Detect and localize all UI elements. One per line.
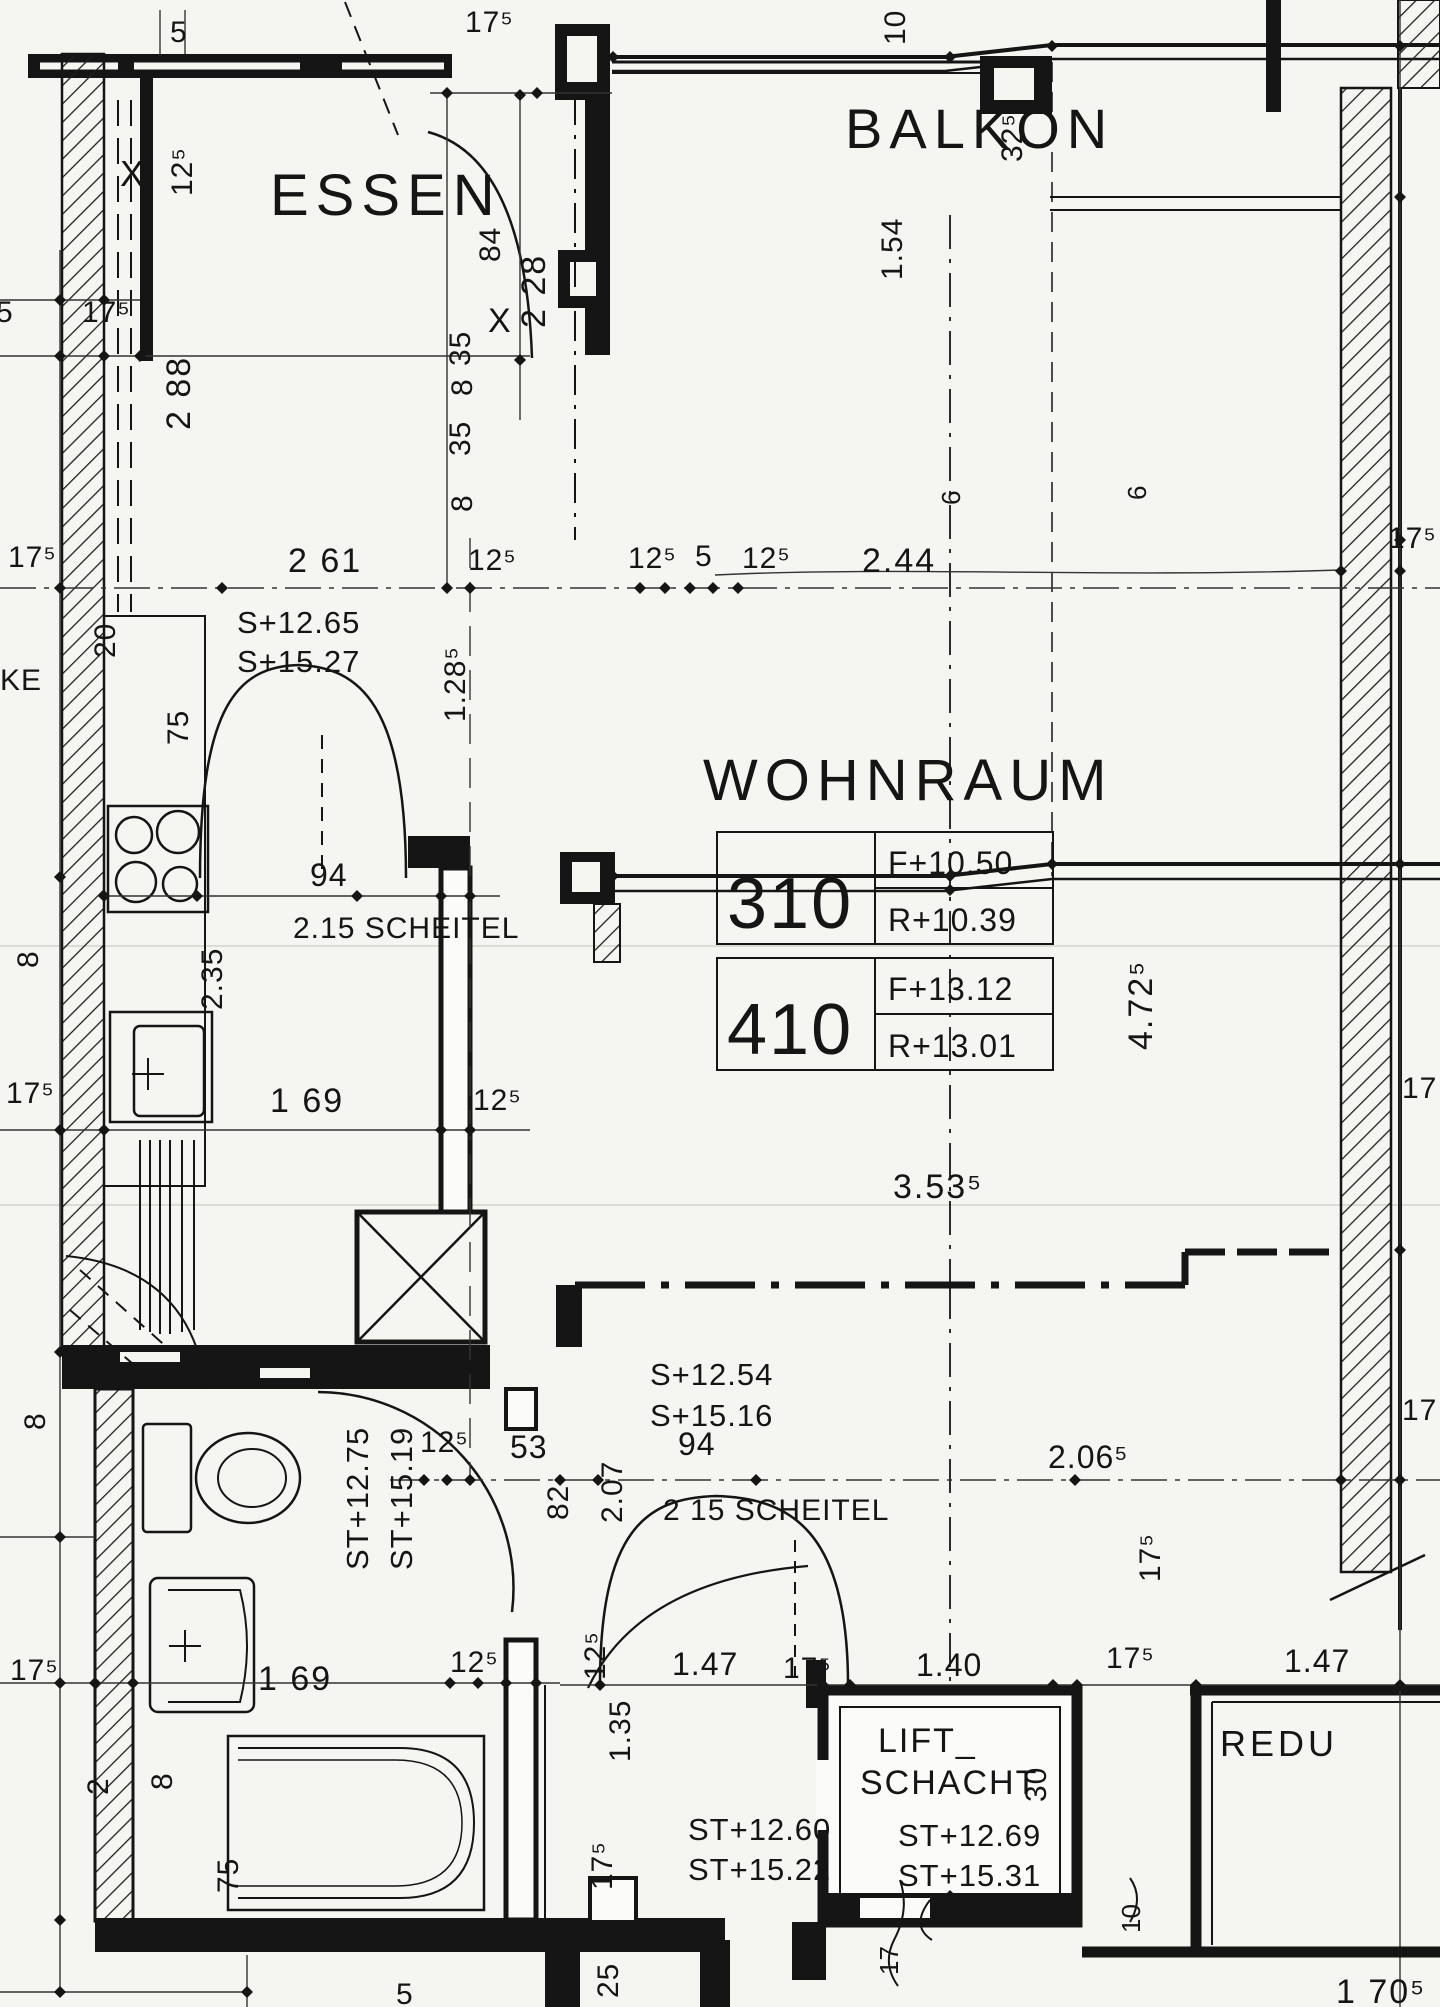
spot-level-wc-2: ST+15.19 [384, 1427, 419, 1570]
dim-169-kitchen: 1 69 [270, 1082, 344, 1120]
dim-8-left-2: 8 [19, 1412, 52, 1430]
dimension-dot [464, 1474, 476, 1486]
dim-175-mid-1: 17⁵ [783, 1652, 832, 1685]
dim-top-325: 32⁵ [996, 113, 1029, 162]
dim-235: 2.35 [196, 948, 229, 1010]
wall-right-exterior [1050, 0, 1440, 1630]
wall-entry-stub [556, 1285, 582, 1347]
table-410-f: F+13.12 [888, 971, 1013, 1007]
dim-147-b: 1.47 [1284, 1643, 1350, 1679]
dimension-dot [944, 884, 956, 896]
dimension-dot [659, 582, 671, 594]
dimension-dot [531, 87, 543, 99]
dimension-dot [418, 1474, 430, 1486]
room-label-lift-1: LIFT_ [878, 1722, 977, 1760]
dimension-dot [514, 89, 526, 101]
room-label-lift-2: SCHACHT [860, 1764, 1038, 1802]
spot-level-essen-2: S+15.27 [237, 644, 360, 679]
wall-stub-below-a [545, 1952, 580, 2007]
dim-1705: 1 70⁵ [1336, 1973, 1426, 2007]
dimension-dot [1394, 191, 1406, 203]
dimension-dot [634, 582, 646, 594]
dimension-dot [441, 582, 453, 594]
dimension-dot [750, 1474, 762, 1486]
dim-125-a: 12⁵ [468, 544, 517, 577]
dim-175-right-1: 17⁵ [1388, 522, 1437, 555]
dim-125-f: 12⁵ [450, 1646, 499, 1679]
dim-53: 53 [510, 1429, 548, 1465]
table-310-r: R+10.39 [888, 902, 1017, 938]
dim-94-entry: 94 [678, 1426, 716, 1462]
dimension-dot [684, 582, 696, 594]
dim-261: 2 61 [288, 542, 362, 580]
dimension-dot [1069, 1474, 1081, 1486]
washbasin [150, 1578, 254, 1712]
scanned-floorplan-page: ESSEN BALKON WOHNRAUM LIFT_ SCHACHT REDU… [0, 0, 1440, 2007]
dimension-dot [707, 582, 719, 594]
dimension-dot [732, 582, 744, 594]
dim-4725: 4.72⁵ [1122, 960, 1160, 1050]
drainboard [140, 1140, 194, 1334]
table-410-r: R+13.01 [888, 1028, 1017, 1064]
dimension-dot [241, 1986, 253, 1998]
dim-244: 2.44 [862, 542, 936, 580]
dim-2-bottomleft: 2 [82, 1777, 115, 1795]
wall-left-inner-strip [140, 78, 153, 361]
dim-35-b: 35 [444, 421, 477, 456]
dim-84: 84 [474, 227, 507, 262]
wall-bath-left [95, 1389, 133, 1921]
shaft-x-box [357, 1212, 485, 1342]
table-unit-310: 310 [727, 864, 853, 944]
dim-147-a: 1.47 [672, 1646, 738, 1682]
dim-175-left-4: 17⁵ [10, 1654, 59, 1687]
spot-level-bad-2: ST+15.22 [688, 1852, 831, 1887]
dimension-dot [554, 1474, 566, 1486]
room-label-wohnraum: WOHNRAUM [703, 748, 1113, 813]
dim-75-b: 75 [212, 1858, 245, 1893]
dimension-dot [464, 582, 476, 594]
dimension-dot [1394, 858, 1406, 870]
dim-94-kitchen: 94 [310, 857, 348, 893]
arch-kitchen [200, 665, 406, 878]
dim-17-right-1: 17 [1402, 1072, 1437, 1105]
dim-140: 1.40 [916, 1647, 982, 1683]
dim-35-a: 35 [444, 331, 477, 366]
dim-x-upper: X [120, 153, 144, 194]
dim-5-bottom: 5 [396, 1978, 414, 2007]
dim-top-5: 5 [170, 16, 188, 49]
dim-175-vert-1: 17⁵ [586, 1841, 619, 1890]
toilet [143, 1424, 300, 1532]
dimension-dot [1394, 1474, 1406, 1486]
dim-17-right-2: 17 [1402, 1394, 1437, 1427]
dim-125-e: 12⁵ [420, 1426, 469, 1459]
wall-left-exterior [62, 54, 104, 1348]
kitchen-counter [104, 616, 205, 1186]
dimension-dot [1046, 40, 1058, 52]
dim-8-a: 8 [446, 378, 479, 396]
dim-175-left-3: 17⁵ [6, 1077, 55, 1110]
dim-x-lower: X [488, 302, 511, 340]
dim-125-b: 12⁵ [628, 542, 677, 575]
dimension-dot [1394, 1244, 1406, 1256]
dim-top-175: 17⁵ [465, 6, 514, 39]
dim-175-left-1: 17⁵ [82, 296, 131, 329]
dimension-dot [54, 1914, 66, 1926]
wall-kitchen-bath-band [62, 1345, 490, 1389]
dim-175-mid-2: 17⁵ [1106, 1642, 1155, 1675]
note-scheitel-kitchen: 2.15 SCHEITEL [293, 912, 519, 945]
wall-bath-right-jamb [506, 1389, 536, 1429]
dim-207: 2.07 [596, 1461, 629, 1523]
spot-level-bad-1: ST+12.60 [688, 1812, 831, 1847]
dimension-dot [216, 582, 228, 594]
dim-5-left: 5 [0, 296, 14, 329]
dimension-dot [54, 1531, 66, 1543]
sink [110, 1012, 212, 1122]
dim-2065: 2.06⁵ [1048, 1439, 1129, 1475]
dim-17-scribble: 17 [874, 1946, 904, 1975]
spot-level-wc-1: ST+12.75 [340, 1427, 375, 1570]
dim-1285: 1.28⁵ [439, 646, 472, 722]
wall-stub-below-b [700, 1940, 730, 2007]
dim-8-left: 8 [12, 950, 45, 968]
table-310-f: F+10.50 [888, 845, 1013, 881]
room-label-balkon: BALKON [845, 97, 1114, 160]
dimension-dot [441, 1474, 453, 1486]
spot-level-wohnraum-1: S+12.54 [650, 1357, 773, 1392]
wall-kitchen-corner [408, 836, 470, 868]
spot-level-lift-1: ST+12.69 [898, 1818, 1041, 1853]
dim-6-b: 6 [1122, 486, 1152, 500]
dim-75-a: 75 [162, 710, 195, 745]
dim-135: 1.35 [604, 1700, 637, 1762]
dimension-dot [1394, 565, 1406, 577]
dim-10-scribble: 10 [1116, 1904, 1146, 1933]
dim-288: 2 88 [160, 356, 198, 430]
note-scheitel-entry: 2 15 SCHEITEL [663, 1494, 889, 1527]
balcony-door-frames [555, 24, 1052, 355]
room-label-redu: REDU [1220, 1723, 1338, 1764]
dim-20: 20 [89, 623, 122, 658]
dim-125-vert: 12⁵ [166, 147, 199, 196]
dimension-dot [351, 890, 363, 902]
dim-82: 82 [542, 1485, 575, 1520]
label-fragment-ke: KE [0, 664, 42, 697]
floorplan-drawing: ESSEN BALKON WOHNRAUM LIFT_ SCHACHT REDU… [0, 0, 1440, 2007]
dimension-dot [54, 1986, 66, 1998]
dim-175-left-2: 17⁵ [8, 541, 57, 574]
dim-8-bottomleft: 8 [146, 1772, 179, 1790]
dim-30-lift: 30 [1020, 1767, 1053, 1802]
dim-3535: 3.53⁵ [893, 1168, 983, 1206]
dim-228: 2 28 [515, 254, 553, 328]
table-unit-410: 410 [727, 990, 853, 1070]
dimension-dot [441, 87, 453, 99]
dim-6-a: 6 [936, 491, 966, 505]
dim-125-d: 12⁵ [473, 1084, 522, 1117]
dimension-dot [191, 890, 203, 902]
spot-level-lift-2: ST+15.31 [898, 1858, 1041, 1893]
dim-154: 1.54 [876, 218, 909, 280]
dim-169-bath: 1 69 [258, 1660, 332, 1698]
dim-top-10: 10 [879, 10, 912, 45]
dim-25-bottom: 25 [592, 1963, 625, 1998]
dim-125-g: 12⁵ [579, 1631, 612, 1680]
dim-125-c: 12⁵ [742, 542, 791, 575]
dim-5-mid: 5 [695, 540, 713, 573]
bathtub [228, 1736, 484, 1910]
text-labels: ESSEN BALKON WOHNRAUM LIFT_ SCHACHT REDU… [0, 6, 1437, 2007]
dim-175-vert-2: 17⁵ [1134, 1533, 1167, 1582]
spot-level-essen-1: S+12.65 [237, 605, 360, 640]
dim-8-b: 8 [446, 494, 479, 512]
room-label-essen: ESSEN [270, 163, 502, 228]
